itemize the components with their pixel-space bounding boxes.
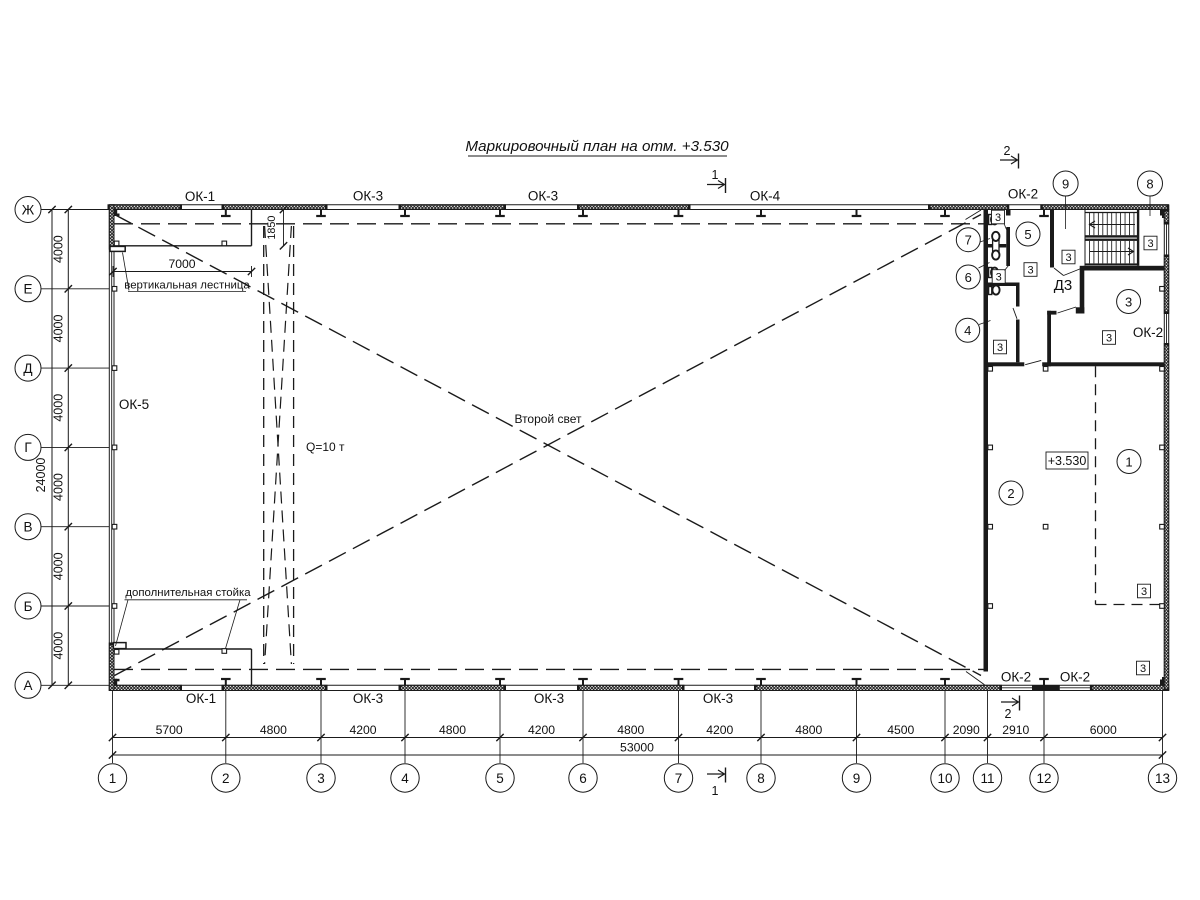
svg-text:10: 10 xyxy=(937,771,952,786)
svg-text:3: 3 xyxy=(1141,586,1147,598)
svg-text:3: 3 xyxy=(1027,265,1033,277)
svg-text:13: 13 xyxy=(1155,771,1170,786)
svg-text:ОК-3: ОК-3 xyxy=(353,189,383,204)
svg-text:2: 2 xyxy=(222,771,230,786)
svg-text:Б: Б xyxy=(24,599,33,614)
svg-text:5700: 5700 xyxy=(156,723,183,737)
svg-text:9: 9 xyxy=(853,771,861,786)
svg-text:ОК-2: ОК-2 xyxy=(1133,325,1163,340)
svg-text:2: 2 xyxy=(1004,144,1011,158)
svg-text:4800: 4800 xyxy=(439,723,466,737)
svg-text:ОК-3: ОК-3 xyxy=(703,691,733,706)
svg-text:Г: Г xyxy=(24,440,32,455)
svg-text:4200: 4200 xyxy=(349,723,376,737)
svg-text:3: 3 xyxy=(1065,252,1071,264)
svg-text:Е: Е xyxy=(23,282,32,297)
svg-text:4: 4 xyxy=(401,771,409,786)
svg-text:Второй свет: Второй свет xyxy=(514,412,582,426)
svg-text:1: 1 xyxy=(712,168,719,182)
svg-text:3: 3 xyxy=(997,342,1003,354)
svg-text:ОК-2: ОК-2 xyxy=(1008,187,1038,202)
svg-text:7: 7 xyxy=(965,233,972,248)
svg-text:6000: 6000 xyxy=(1090,723,1117,737)
svg-text:8: 8 xyxy=(757,771,765,786)
svg-text:ОК-2: ОК-2 xyxy=(1001,670,1031,685)
svg-text:4800: 4800 xyxy=(260,723,287,737)
svg-text:5: 5 xyxy=(1024,227,1031,242)
svg-text:4500: 4500 xyxy=(887,723,914,737)
svg-text:вертикальная лестница: вертикальная лестница xyxy=(124,280,250,292)
svg-text:4000: 4000 xyxy=(52,473,66,501)
svg-text:24000: 24000 xyxy=(34,458,48,493)
svg-text:7: 7 xyxy=(675,771,683,786)
svg-text:11: 11 xyxy=(980,771,994,786)
svg-text:Ж: Ж xyxy=(22,202,35,217)
svg-text:12: 12 xyxy=(1036,771,1051,786)
svg-text:ОК-5: ОК-5 xyxy=(119,397,149,412)
svg-text:ОК-1: ОК-1 xyxy=(186,691,216,706)
svg-text:А: А xyxy=(23,678,32,693)
svg-text:ОК-1: ОК-1 xyxy=(185,189,215,204)
svg-text:1850: 1850 xyxy=(266,216,278,240)
svg-text:4: 4 xyxy=(964,323,971,338)
svg-text:+3.530: +3.530 xyxy=(1048,454,1087,468)
svg-text:9: 9 xyxy=(1062,176,1069,191)
svg-text:4000: 4000 xyxy=(52,632,66,660)
svg-text:5: 5 xyxy=(496,771,504,786)
svg-text:4000: 4000 xyxy=(52,552,66,580)
svg-text:4800: 4800 xyxy=(617,723,644,737)
svg-text:2: 2 xyxy=(1007,486,1014,501)
svg-text:6: 6 xyxy=(579,771,587,786)
svg-text:1: 1 xyxy=(712,784,719,798)
svg-text:4200: 4200 xyxy=(528,723,555,737)
svg-text:3: 3 xyxy=(1147,238,1153,250)
svg-text:4800: 4800 xyxy=(795,723,822,737)
svg-text:3: 3 xyxy=(1140,663,1146,675)
svg-text:7000: 7000 xyxy=(168,257,195,271)
svg-text:ОК-3: ОК-3 xyxy=(528,189,558,204)
svg-text:4000: 4000 xyxy=(52,235,66,263)
svg-text:3: 3 xyxy=(317,771,325,786)
svg-text:4000: 4000 xyxy=(52,315,66,343)
svg-text:Д3: Д3 xyxy=(1054,277,1073,294)
svg-text:ОК-3: ОК-3 xyxy=(534,691,564,706)
svg-text:Маркировочный план на отм. +3.: Маркировочный план на отм. +3.530 xyxy=(465,138,729,155)
svg-text:3: 3 xyxy=(995,212,1001,224)
svg-text:1: 1 xyxy=(109,771,117,786)
svg-text:ОК-2: ОК-2 xyxy=(1060,670,1090,685)
svg-text:4000: 4000 xyxy=(52,394,66,422)
svg-text:53000: 53000 xyxy=(620,741,654,755)
svg-text:Д: Д xyxy=(23,361,32,376)
svg-text:3: 3 xyxy=(996,272,1002,284)
svg-text:1: 1 xyxy=(1125,454,1132,469)
svg-text:2090: 2090 xyxy=(953,723,980,737)
svg-text:2910: 2910 xyxy=(1002,723,1029,737)
svg-text:ОК-4: ОК-4 xyxy=(750,189,781,204)
svg-text:В: В xyxy=(23,520,32,535)
svg-text:3: 3 xyxy=(1106,333,1112,345)
svg-text:8: 8 xyxy=(1146,176,1153,191)
svg-text:4200: 4200 xyxy=(706,723,733,737)
svg-text:2: 2 xyxy=(1005,707,1012,721)
svg-text:3: 3 xyxy=(1125,294,1132,309)
svg-text:Q=10 т: Q=10 т xyxy=(306,440,345,454)
svg-text:ОК-3: ОК-3 xyxy=(353,691,383,706)
svg-text:дополнительная стойка: дополнительная стойка xyxy=(125,587,251,599)
svg-text:6: 6 xyxy=(965,270,972,285)
